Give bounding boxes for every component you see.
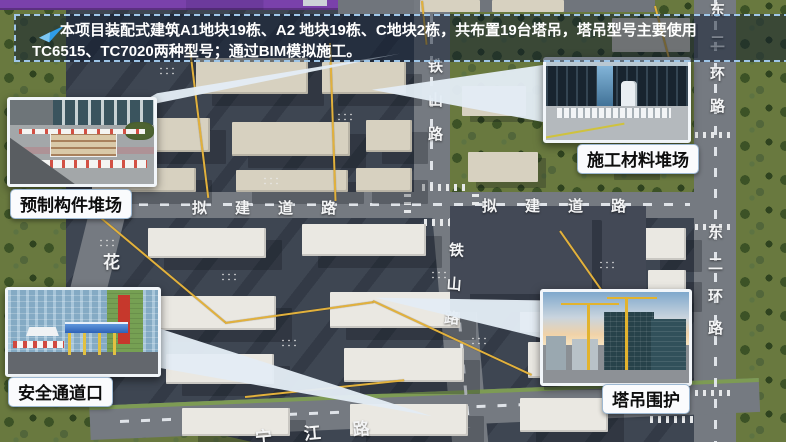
building-block: [356, 168, 412, 192]
road-label-proposed-east: 拟建道路: [482, 195, 654, 216]
car-cluster: [220, 272, 239, 283]
inset-photo-crane-enclosure: [540, 289, 692, 386]
crosswalk: [695, 132, 735, 138]
car-cluster: [262, 176, 281, 187]
inset-crane-mast: [625, 297, 628, 372]
bim-site-overview: 铁山路 铁山路 拟建道路 拟建道路 东二环路 东二环路 花 宁江路 预制构件堆场…: [0, 0, 786, 442]
inset-crane-jib: [607, 297, 657, 299]
project-summary-banner: 本项目装配式建筑A1地块19栋、A2 地块19栋、C地块2栋，共布置19台塔吊，…: [14, 14, 786, 62]
callout-label-crane-enclosure: 塔吊围护: [602, 384, 690, 414]
car-cluster: [280, 338, 299, 349]
road-label-ring-south: 东二环路: [704, 224, 725, 352]
trees-east-hillside: [736, 0, 786, 442]
building-block: [492, 0, 564, 12]
inset-glass-tower: [604, 312, 654, 372]
inset-blue-canopy: [65, 322, 128, 333]
crosswalk: [695, 390, 735, 396]
building-block: [366, 120, 412, 152]
inset-photo-safety-passage: [5, 287, 161, 377]
inset-component-racks: [50, 132, 116, 157]
inset-crane-mast: [587, 303, 590, 370]
inset-white-tent: [26, 327, 59, 336]
car-cluster: [336, 112, 355, 123]
inset-striped-barrier: [13, 341, 64, 348]
callout-label-material-yard: 施工材料堆场: [577, 144, 699, 174]
building-block: [302, 224, 426, 256]
inset-concrete-building: [10, 100, 53, 125]
inset-ground: [543, 370, 689, 383]
factory-blue-roof: [460, 212, 592, 294]
inset-fence-back: [19, 129, 146, 134]
inset-glass-tower: [651, 319, 686, 372]
building-block: [148, 228, 266, 258]
building-block: [644, 228, 686, 260]
crosswalk: [404, 194, 411, 216]
car-cluster: [598, 260, 617, 271]
purple-bar-notch: [303, 0, 327, 6]
road-label-tieshan-north: 铁山路: [424, 58, 445, 160]
inset-building: [546, 336, 566, 372]
inset-building: [572, 339, 598, 370]
crosswalk: [650, 416, 694, 423]
purple-top-bar: [0, 0, 338, 10]
building-block: [468, 152, 538, 182]
banner-line-1: 本项目装配式建筑A1地块19栋、A2 地块19栋、C地块2栋，共布置19台塔吊，…: [60, 19, 697, 40]
inset-silo: [621, 81, 637, 110]
road-label-proposed-west: 拟建道路: [192, 197, 364, 218]
building-block: [344, 348, 464, 382]
inset-photo-precast-yard: [7, 97, 157, 187]
callout-label-safety-passage: 安全通道口: [8, 377, 113, 407]
inset-crane-jib: [561, 303, 619, 305]
inset-dark-facades: [546, 66, 688, 108]
inset-photo-material-yard: [543, 57, 691, 143]
inset-ground: [8, 352, 158, 374]
callout-label-precast-yard: 预制构件堆场: [10, 189, 132, 219]
banner-line-2: TC6515、TC7020两种型号；通过BIM模拟施工。: [32, 40, 361, 61]
inset-yellow-legs: [68, 333, 125, 355]
crosswalk: [422, 184, 468, 191]
car-cluster: [158, 66, 177, 77]
road-label-hua: 花: [103, 248, 120, 273]
building-block: [236, 170, 348, 192]
car-cluster: [470, 336, 489, 347]
building-block: [420, 0, 480, 12]
inset-panel-fence: [557, 108, 671, 118]
inset-glass-column: [597, 66, 613, 108]
building-block: [520, 398, 608, 432]
